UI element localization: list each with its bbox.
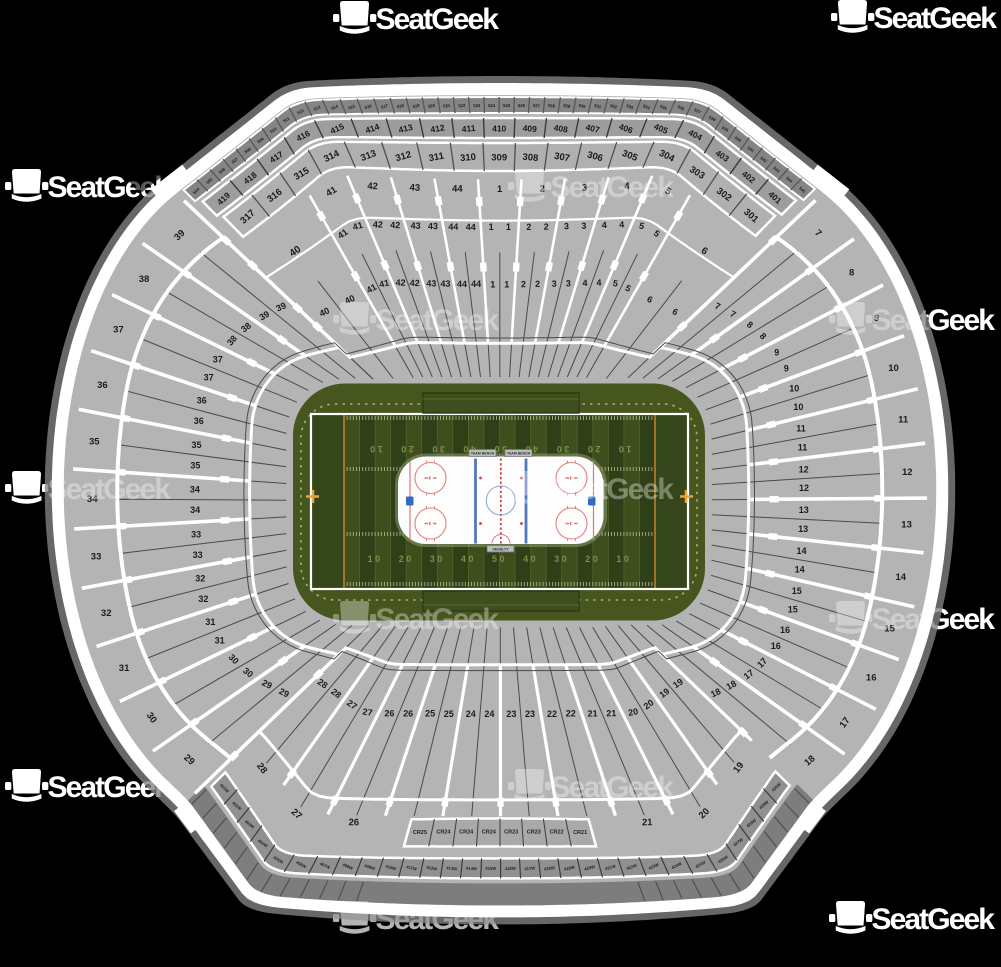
svg-text:37: 37 — [213, 354, 223, 364]
svg-text:44: 44 — [457, 279, 467, 289]
svg-text:16: 16 — [866, 673, 877, 684]
svg-text:35: 35 — [89, 437, 100, 448]
svg-text:31: 31 — [215, 635, 225, 645]
svg-text:42: 42 — [390, 220, 400, 230]
svg-text:10: 10 — [368, 444, 383, 454]
svg-text:44: 44 — [466, 222, 476, 232]
svg-text:27: 27 — [362, 706, 373, 717]
svg-text:16: 16 — [771, 641, 781, 651]
svg-text:1: 1 — [497, 184, 503, 195]
svg-text:36: 36 — [197, 396, 207, 406]
svg-text:3: 3 — [581, 221, 586, 231]
svg-text:523: 523 — [473, 103, 481, 108]
svg-text:25: 25 — [425, 709, 435, 719]
svg-text:4: 4 — [602, 220, 607, 230]
svg-text:3: 3 — [552, 279, 557, 289]
svg-text:31: 31 — [205, 617, 215, 627]
svg-text:21: 21 — [606, 708, 616, 718]
svg-text:14: 14 — [796, 546, 806, 556]
svg-text:37: 37 — [113, 325, 124, 336]
svg-text:20: 20 — [399, 444, 414, 454]
svg-text:15: 15 — [792, 586, 802, 596]
svg-text:410: 410 — [492, 124, 506, 134]
svg-text:20: 20 — [627, 706, 639, 718]
svg-text:41: 41 — [378, 278, 390, 290]
svg-text:527: 527 — [533, 103, 541, 109]
svg-text:415W: 415W — [485, 866, 496, 871]
svg-text:526: 526 — [518, 103, 526, 108]
svg-text:CR24: CR24 — [436, 830, 451, 836]
svg-text:9: 9 — [784, 363, 789, 373]
svg-text:21: 21 — [642, 817, 653, 828]
svg-text:PENALTY: PENALTY — [492, 548, 509, 552]
svg-text:521: 521 — [443, 103, 451, 109]
svg-text:32: 32 — [101, 608, 112, 619]
svg-text:37: 37 — [204, 373, 214, 383]
svg-text:44: 44 — [471, 279, 481, 289]
svg-text:414W: 414W — [466, 866, 477, 872]
svg-text:30: 30 — [430, 554, 445, 564]
svg-text:522: 522 — [458, 103, 466, 109]
svg-text:31: 31 — [119, 663, 130, 674]
svg-text:22: 22 — [547, 709, 557, 719]
svg-text:4: 4 — [582, 278, 587, 288]
svg-text:9: 9 — [774, 347, 779, 357]
svg-text:42: 42 — [367, 181, 378, 192]
svg-text:308: 308 — [522, 152, 539, 164]
svg-text:417W: 417W — [524, 865, 535, 871]
svg-text:13: 13 — [799, 505, 809, 515]
svg-text:1: 1 — [504, 279, 509, 289]
svg-text:8: 8 — [849, 267, 854, 278]
svg-text:35: 35 — [190, 460, 200, 470]
svg-text:36: 36 — [194, 416, 204, 426]
svg-text:23: 23 — [506, 709, 516, 719]
svg-text:44: 44 — [448, 222, 458, 232]
svg-text:22: 22 — [566, 709, 576, 719]
svg-text:30: 30 — [554, 554, 569, 564]
svg-text:11: 11 — [796, 424, 806, 434]
svg-text:13: 13 — [798, 524, 808, 534]
svg-text:34: 34 — [190, 505, 200, 515]
svg-text:2: 2 — [544, 222, 549, 232]
svg-text:30: 30 — [554, 444, 569, 454]
svg-text:10: 10 — [616, 554, 631, 564]
svg-text:CR22: CR22 — [550, 830, 564, 836]
svg-text:12: 12 — [902, 467, 913, 478]
svg-text:310: 310 — [460, 152, 477, 164]
svg-text:43: 43 — [410, 221, 420, 231]
svg-text:40: 40 — [461, 554, 476, 564]
svg-text:4: 4 — [619, 220, 624, 230]
svg-text:24: 24 — [484, 709, 494, 719]
svg-text:40: 40 — [523, 554, 538, 564]
svg-text:2: 2 — [526, 222, 531, 232]
svg-text:20: 20 — [399, 554, 414, 564]
svg-text:CR24: CR24 — [482, 830, 497, 836]
svg-text:26: 26 — [348, 817, 359, 828]
svg-text:10: 10 — [789, 384, 799, 394]
svg-text:12: 12 — [799, 483, 809, 493]
svg-text:43: 43 — [428, 221, 438, 231]
svg-text:309: 309 — [491, 153, 507, 164]
svg-text:10: 10 — [368, 554, 383, 564]
svg-text:32: 32 — [195, 574, 205, 584]
svg-text:36: 36 — [97, 380, 108, 391]
svg-text:13: 13 — [901, 520, 912, 531]
svg-text:2: 2 — [521, 279, 526, 289]
svg-text:35: 35 — [191, 440, 201, 450]
svg-text:CR25: CR25 — [413, 830, 427, 836]
svg-text:25: 25 — [444, 709, 454, 719]
svg-text:33: 33 — [193, 550, 203, 560]
svg-text:3: 3 — [566, 278, 571, 288]
svg-text:44: 44 — [452, 184, 463, 195]
svg-text:528: 528 — [548, 103, 556, 109]
svg-text:409: 409 — [522, 123, 537, 134]
svg-text:CR23: CR23 — [504, 830, 518, 836]
svg-text:10: 10 — [888, 363, 899, 374]
svg-text:20: 20 — [585, 554, 600, 564]
svg-text:11: 11 — [798, 442, 808, 452]
svg-text:2: 2 — [535, 279, 540, 289]
svg-text:4: 4 — [596, 278, 601, 288]
svg-text:21: 21 — [588, 708, 598, 718]
svg-text:1: 1 — [490, 279, 495, 289]
svg-text:1: 1 — [506, 222, 511, 232]
svg-text:26: 26 — [384, 708, 394, 718]
svg-text:10: 10 — [793, 402, 803, 412]
svg-text:CR23: CR23 — [527, 830, 541, 836]
svg-text:43: 43 — [426, 278, 436, 288]
svg-text:30: 30 — [430, 444, 445, 454]
svg-text:26: 26 — [403, 708, 413, 718]
svg-text:16: 16 — [780, 625, 790, 635]
svg-text:TEAM BENCH: TEAM BENCH — [471, 452, 495, 456]
svg-text:CR24: CR24 — [459, 830, 474, 836]
svg-text:14: 14 — [795, 565, 805, 575]
svg-text:524: 524 — [488, 103, 496, 108]
svg-text:24: 24 — [466, 709, 476, 719]
svg-text:12: 12 — [799, 464, 809, 474]
svg-text:23: 23 — [525, 709, 535, 719]
svg-text:34: 34 — [190, 485, 200, 495]
svg-text:3: 3 — [564, 221, 569, 231]
svg-text:33: 33 — [91, 552, 102, 563]
svg-text:15: 15 — [788, 605, 798, 615]
svg-text:10: 10 — [616, 444, 631, 454]
svg-text:416W: 416W — [505, 866, 516, 871]
svg-text:1: 1 — [489, 222, 494, 232]
svg-text:411: 411 — [461, 123, 476, 134]
svg-text:38: 38 — [139, 274, 150, 285]
svg-text:CR21: CR21 — [573, 830, 587, 836]
svg-text:50: 50 — [492, 554, 507, 564]
svg-text:42: 42 — [410, 278, 420, 288]
svg-text:TEAM BENCH: TEAM BENCH — [507, 452, 531, 456]
svg-text:42: 42 — [373, 219, 383, 229]
svg-text:525: 525 — [503, 103, 511, 108]
svg-text:42: 42 — [396, 278, 406, 288]
svg-text:32: 32 — [198, 594, 208, 604]
svg-text:43: 43 — [440, 279, 450, 289]
svg-text:11: 11 — [898, 415, 909, 426]
svg-text:14: 14 — [896, 572, 907, 583]
svg-text:20: 20 — [585, 444, 600, 454]
svg-text:33: 33 — [191, 529, 201, 539]
svg-text:43: 43 — [409, 182, 420, 193]
